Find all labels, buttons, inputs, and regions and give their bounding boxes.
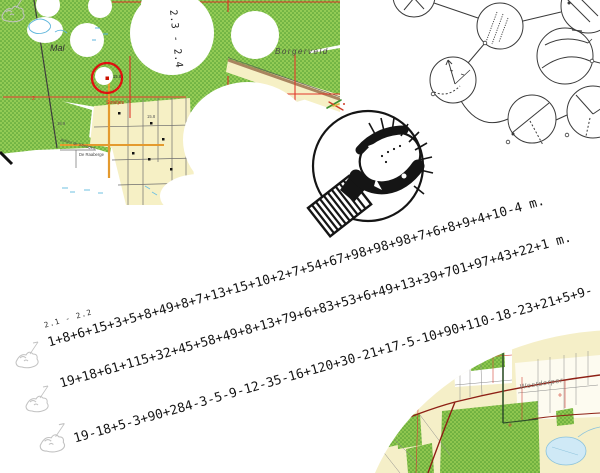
scanned-puzzle-collage: Mal Borgerveld 2.3 - 2.4 15.8 15.8 18.9 … xyxy=(0,0,600,473)
stage-circles-diagram xyxy=(393,0,600,145)
stamp-hedgehog-icon xyxy=(308,111,433,236)
colored-scribble xyxy=(327,100,345,110)
overlay-drawings xyxy=(0,0,600,473)
faint-critter-sketches xyxy=(2,0,65,452)
